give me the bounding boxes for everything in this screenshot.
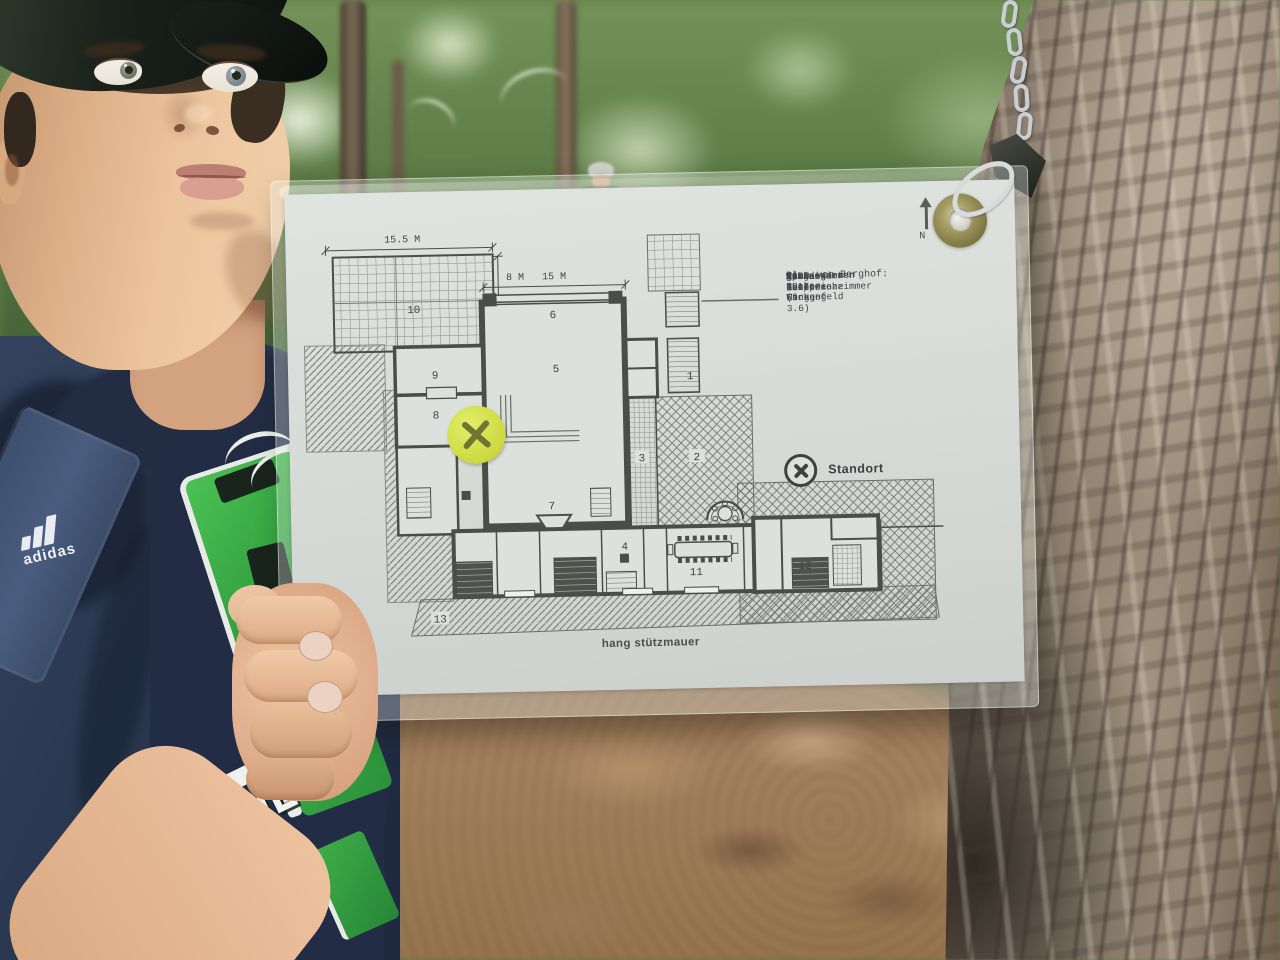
room-label-9: 9 bbox=[432, 371, 439, 383]
room-label-3: 3 bbox=[638, 453, 645, 465]
room-label-2: 2 bbox=[693, 452, 700, 464]
standort-label: Standort bbox=[828, 461, 884, 476]
chain-link bbox=[1013, 84, 1030, 113]
chin-shadow bbox=[190, 212, 254, 230]
room-label-8: 8 bbox=[433, 411, 440, 423]
room-label-11: 11 bbox=[690, 567, 704, 579]
lower-lip bbox=[180, 177, 244, 200]
room-label-5: 5 bbox=[553, 364, 560, 376]
standort-x-icon bbox=[784, 454, 818, 488]
main-living-block bbox=[481, 291, 628, 531]
pupil bbox=[125, 66, 133, 74]
upper-right-stairs-terrace bbox=[618, 232, 780, 397]
adidas-bar-icon bbox=[21, 535, 31, 551]
laminated-sign-pouch: 15.5 M 8 M 15 M bbox=[270, 165, 1039, 723]
north-arrow-shaft bbox=[925, 205, 928, 229]
dim-window-width: 15 M bbox=[542, 272, 566, 284]
photo-scene: adidas MINECRAFT bbox=[0, 0, 1280, 960]
adidas-bar-icon bbox=[33, 525, 44, 548]
room-label-10: 10 bbox=[407, 305, 420, 317]
standort-row: Standort bbox=[784, 449, 1015, 490]
dim-depth: 8 M bbox=[506, 273, 524, 284]
ring-finger bbox=[250, 708, 352, 758]
room-label-6: 6 bbox=[549, 310, 556, 322]
north-label: N bbox=[919, 231, 925, 242]
eye-glint bbox=[231, 69, 235, 73]
adidas-bar-icon bbox=[44, 514, 56, 546]
nose-highlight bbox=[184, 104, 212, 124]
terrace-over-garage bbox=[333, 254, 495, 352]
north-compass: N bbox=[910, 197, 941, 250]
room-label-13: 13 bbox=[434, 614, 447, 626]
eye-glint bbox=[124, 64, 127, 67]
legend-bunker-row: 13.Bunker Eingang bbox=[786, 282, 817, 283]
legend-label: Bunker Eingang bbox=[786, 281, 826, 303]
dim-terrace-width: 15.5 M bbox=[384, 235, 420, 247]
room-label-12: 12 bbox=[798, 561, 811, 573]
chain-link bbox=[1006, 27, 1024, 56]
room-label-4: 4 bbox=[621, 542, 628, 554]
pinky-finger bbox=[246, 758, 334, 800]
legend-list: 1.grosse Treppe 2.Terrasse Ehrenwache 3.… bbox=[786, 272, 817, 273]
floorplan-card: 15.5 M 8 M 15 M bbox=[284, 179, 1024, 696]
fingernail bbox=[307, 681, 343, 713]
room-label-7: 7 bbox=[548, 501, 555, 513]
room-label-1: 1 bbox=[687, 371, 694, 383]
ear-inner bbox=[5, 154, 19, 186]
berghof-floorplan-drawing: 15.5 M 8 M 15 M bbox=[284, 179, 1024, 694]
fingernail bbox=[299, 631, 333, 661]
